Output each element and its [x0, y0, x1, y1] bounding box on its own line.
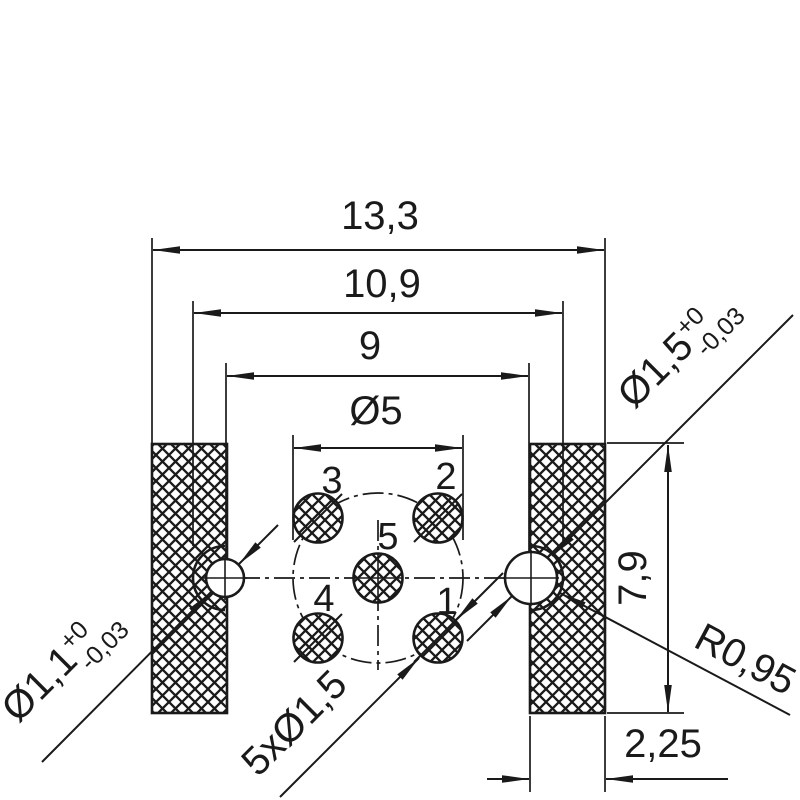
dim-text-center-distance: 9 — [359, 324, 381, 368]
label-hole-left: Ø1,1 +0 -0,03 — [0, 595, 135, 738]
leader-hole-left-opposite — [239, 525, 278, 564]
hole-number-1: 1 — [436, 581, 457, 623]
technical-drawing-canvas: 13,3 10,9 9 Ø5 2,25 7,9 3 2 5 4 1 Ø1,5 +… — [0, 0, 800, 800]
label-hole-pattern: 5xØ1,5 — [233, 662, 355, 784]
dim-text-block-height: 7,9 — [611, 550, 655, 606]
hole-number-3: 3 — [321, 460, 342, 502]
label-hole-right: Ø1,5 +0 -0,03 — [608, 281, 751, 424]
dim-text-boss-extent: 10,9 — [343, 262, 421, 306]
hole-number-5: 5 — [377, 516, 398, 558]
connector-dimension-drawing: 13,3 10,9 9 Ø5 2,25 7,9 3 2 5 4 1 Ø1,5 +… — [0, 0, 800, 800]
hole-number-4: 4 — [313, 578, 334, 620]
hole-number-2: 2 — [435, 456, 456, 498]
dim-text-bolt-circle: Ø5 — [349, 389, 402, 433]
dim-text-overall-width: 13,3 — [341, 194, 419, 238]
dim-text-block-width: 2,25 — [624, 722, 702, 766]
label-hole-pattern-text: 5xØ1,5 — [233, 662, 355, 784]
